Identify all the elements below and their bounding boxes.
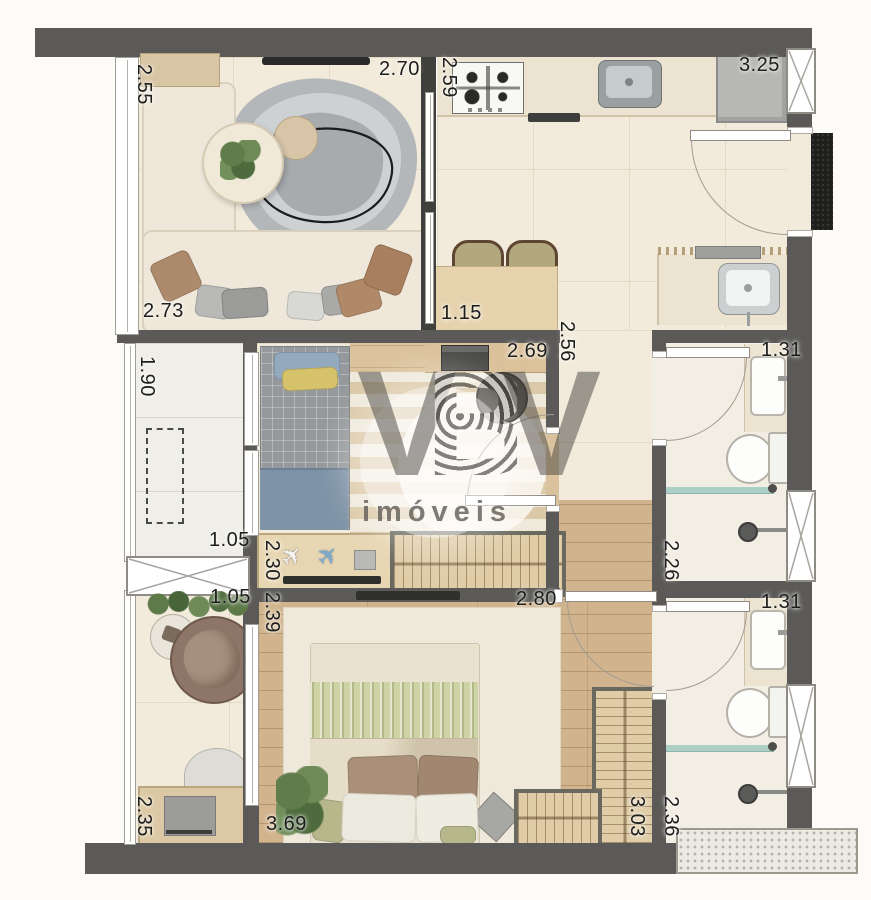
living-kitchen-glass xyxy=(425,92,434,202)
dimension-bedroom2-left: 2.30 xyxy=(261,540,282,581)
table-plant xyxy=(220,140,262,180)
glass-handle xyxy=(768,742,777,751)
laptop-edge xyxy=(166,830,212,834)
cooktop xyxy=(452,62,524,114)
bathroom2-door xyxy=(666,601,750,612)
dimension-bedroom2-top: 2.69 xyxy=(507,341,548,362)
balcony-glazing xyxy=(124,343,136,562)
master-bedroom-door xyxy=(565,591,657,602)
dimension-kitchen-top: 3.25 xyxy=(739,55,780,76)
dimension-living-left: 2.55 xyxy=(133,64,154,105)
master-wardrobe-section xyxy=(514,789,602,847)
entry-door xyxy=(690,130,791,141)
dimension-bath1-top: 1.31 xyxy=(761,340,802,361)
bathroom2-sink xyxy=(750,610,786,670)
dimension-bath2-left: 2.36 xyxy=(660,796,681,837)
shower-glass-partition xyxy=(664,745,774,752)
watermark-subtitle: imóveis xyxy=(350,498,524,527)
pillow-white xyxy=(341,793,417,844)
dimension-kitchen-left: 2.59 xyxy=(438,57,459,98)
dimension-living-top: 2.70 xyxy=(379,59,420,80)
door-jamb xyxy=(652,351,667,358)
dimension-bath1-left: 2.26 xyxy=(660,540,681,581)
living-kitchen-glass xyxy=(425,212,434,324)
bathroom2-window xyxy=(786,684,816,788)
watermark-letter-v: V xyxy=(501,352,585,495)
entry-doormat xyxy=(811,133,833,230)
dimension-master-bottom: 3.69 xyxy=(266,814,307,835)
floor-plan: ✈ ✈ VBV imóveis 2.55 2.70 2.73 2.59 3.25… xyxy=(0,0,871,900)
sink-drain xyxy=(625,78,633,86)
dimension-hall-right: 2.56 xyxy=(556,321,577,362)
pillow-olive xyxy=(440,826,476,844)
dimension-balcony-bottom: 1.05 xyxy=(209,530,250,551)
hall-wood-floor xyxy=(558,500,655,600)
shower-glass-partition xyxy=(664,487,774,494)
dimension-wardrobe-right: 3.03 xyxy=(626,796,647,837)
counter-ledge xyxy=(528,113,580,122)
dimension-balcony-left: 1.90 xyxy=(136,356,157,397)
bathroom1-door xyxy=(666,347,750,358)
glass-handle xyxy=(768,484,777,493)
shower-pipe xyxy=(754,790,788,794)
bathroom1-sink xyxy=(750,356,786,416)
sink-pipe xyxy=(747,312,750,326)
tv-bedroom2 xyxy=(283,576,381,584)
door-jamb xyxy=(652,693,667,700)
door-jamb xyxy=(652,605,667,612)
bathroom2-doorway xyxy=(652,611,666,693)
dimension-master-left: 2.39 xyxy=(261,592,282,633)
shower-floor-mat xyxy=(676,828,858,874)
balcony-ac-outline xyxy=(146,428,184,524)
toilet xyxy=(726,688,774,738)
dimension-master-top: 2.80 xyxy=(516,589,557,610)
bedroom2-window xyxy=(244,352,259,446)
tv-master xyxy=(356,591,460,600)
bedroom2-window xyxy=(244,450,259,536)
dimension-office-top: 1.05 xyxy=(210,587,251,608)
dimension-living-bottom: 2.73 xyxy=(143,301,184,322)
door-jamb xyxy=(787,230,813,237)
dimension-office-left: 2.35 xyxy=(133,796,154,837)
toilet xyxy=(726,434,774,484)
door-jamb xyxy=(652,439,667,446)
dimension-bath2-top: 1.31 xyxy=(761,592,802,613)
pillow-gray xyxy=(221,286,269,319)
bed-green-blanket xyxy=(310,682,478,744)
dimension-dining: 1.15 xyxy=(441,303,482,324)
master-window xyxy=(245,624,259,806)
shower-head xyxy=(738,784,758,804)
shelf-box xyxy=(354,550,376,570)
bathroom1-doorway xyxy=(652,357,666,439)
kitchen-window xyxy=(786,48,816,114)
entry-doorway xyxy=(787,133,812,230)
pillow-white xyxy=(286,290,326,321)
watermark-logo: VBV xyxy=(308,352,618,495)
bathroom1-window xyxy=(786,490,816,582)
washer xyxy=(695,246,761,259)
shower-head xyxy=(738,522,758,542)
sink-drain xyxy=(744,284,752,292)
shower-pipe xyxy=(754,528,788,532)
tv-living xyxy=(262,57,370,65)
